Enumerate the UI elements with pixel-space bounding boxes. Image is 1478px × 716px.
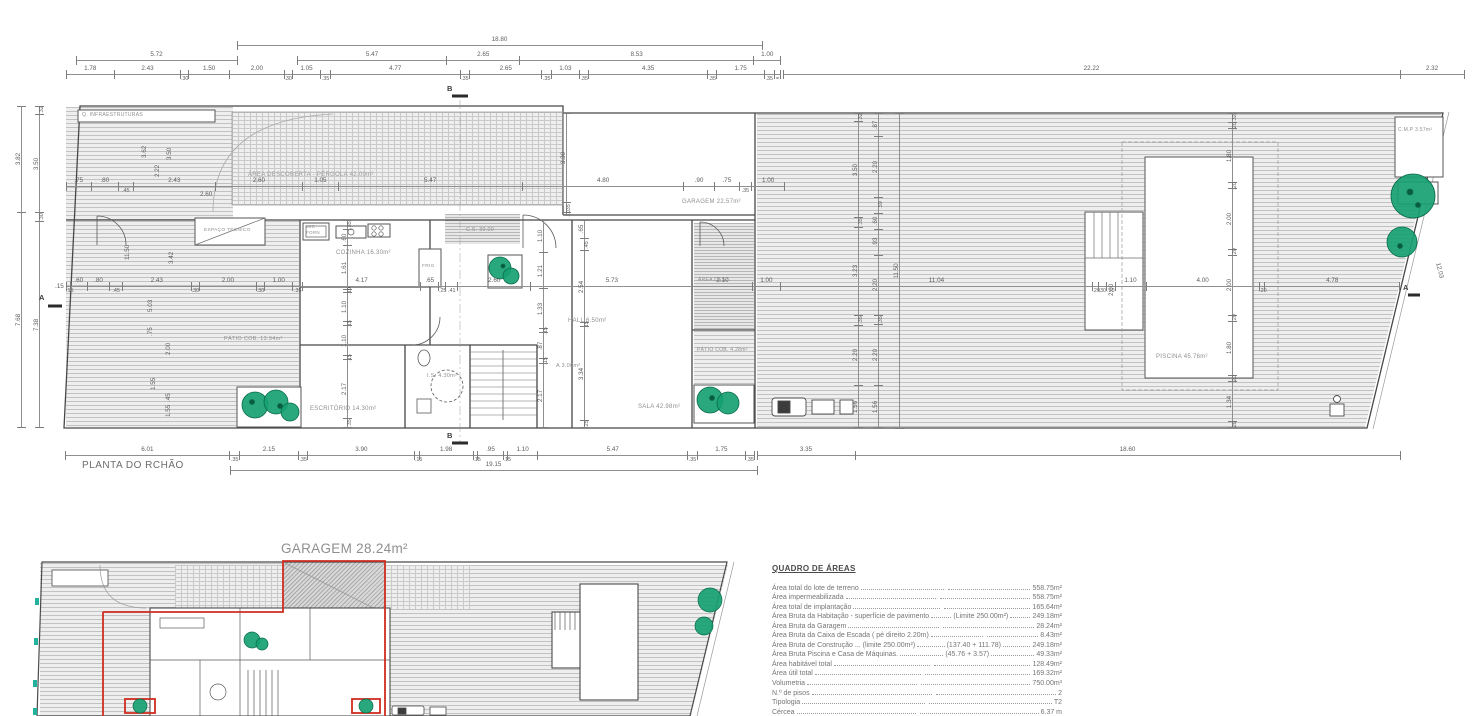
dim-chain-upper: .75.80.452.432.601.055.474.80.90.75.351.… — [66, 179, 785, 189]
dim-label: 3.50 — [166, 148, 173, 160]
section-marker-b-bottom: B — [447, 431, 452, 440]
dotted-leader — [815, 674, 921, 675]
label-mic: MIC — [306, 224, 315, 229]
table-row: Área Bruta da Caixa de Escada ( pé direi… — [772, 630, 1062, 640]
row-value: 165.64m² — [1032, 604, 1062, 611]
dotted-leader — [948, 589, 1031, 590]
dotted-leader — [987, 636, 1039, 637]
row-label: Área habitável total — [772, 661, 832, 668]
dim-chain-pool: .32.201.80.202.00.202.00.201.80.201.34.2… — [1225, 113, 1235, 428]
patio-left-hatch — [66, 221, 299, 427]
room-label-espaco: ESPAÇO TÉCNICO — [204, 228, 251, 233]
dim-chain-bottom: 6.01.352.15.353.90.151.98.15.95.151.105.… — [65, 448, 755, 458]
row-label: Área útil total — [772, 670, 813, 677]
row-value: 28.24m² — [1036, 623, 1062, 630]
dotted-leader — [1003, 646, 1030, 647]
room-label-patio1: PÁTIO COB. 13.94m² — [224, 336, 283, 342]
dim-chain-mid: .15.60.80.452.43.302.00.301.00.354.17.65… — [66, 279, 1400, 289]
room-label-hall: HALL 6.50m² — [568, 318, 606, 324]
terrace-hatch — [66, 107, 233, 220]
row-label: Volumetria — [772, 680, 805, 687]
dim-label: .45 — [165, 393, 172, 402]
dim-chain-hall: 1.101.211.33.15.87.152.17 — [536, 220, 546, 428]
room-label-cmp: C.M.P 3.57m² — [1398, 127, 1432, 133]
dotted-leader — [834, 665, 930, 666]
patio-cob2-hatch — [694, 331, 754, 384]
dotted-leader — [861, 589, 944, 590]
dim-chain-garage: 3.30.35.10 — [559, 113, 569, 215]
row-label: Área Bruta da Garagem — [772, 623, 846, 630]
row-value: 249.18m² — [1032, 613, 1062, 620]
dim-chain-height-total: 11.50 — [892, 113, 902, 428]
dim-chain-bottom-d: 18.60 — [855, 448, 1400, 458]
row-label: Área total do lote de terreno — [772, 585, 859, 592]
dotted-leader — [848, 627, 939, 628]
section-marker-a-right: A — [1403, 283, 1408, 292]
row-label: Área Bruta da Caixa de Escada ( pé direi… — [772, 632, 929, 639]
table-row: Área Bruta da Garagem 28.24m² — [772, 620, 1062, 630]
room-label-cozinha: COZINHA 16.30m² — [336, 250, 391, 256]
table-row: Tipologia T2 — [772, 697, 1062, 707]
room-label-escritorio: ESCRITÓRIO 14.30m² — [310, 406, 376, 412]
row-annotation: (137.40 + 111.78) — [947, 642, 1001, 649]
dim-chain-top-b: 5.472.658.531.00 — [297, 53, 781, 63]
dotted-leader — [807, 684, 917, 685]
section-marker-b-top: B — [447, 84, 452, 93]
dim-label: 3.42 — [168, 252, 175, 264]
dim-label: 11.50 — [124, 245, 131, 260]
dim-chain-left-outer: 3.827.68 — [14, 106, 24, 428]
dim-label: 1.55 — [165, 405, 172, 417]
row-value: T2 — [1054, 699, 1062, 706]
row-value: 750.00m³ — [1032, 680, 1062, 687]
dotted-leader — [936, 694, 1056, 695]
areas-table: QUADRO DE ÁREAS Área total do lote de te… — [772, 558, 1062, 716]
row-annotation: (45.76 + 3.57) — [945, 651, 989, 658]
dotted-leader — [931, 617, 951, 618]
row-value: 49.33m² — [1036, 651, 1062, 658]
dim-label: .15 — [55, 283, 64, 290]
dim-chain-site-a: 22.22 — [783, 67, 1400, 77]
row-value: 249.18m² — [1032, 642, 1062, 649]
dotted-leader — [1010, 617, 1030, 618]
areas-table-title: QUADRO DE ÁREAS — [772, 564, 856, 573]
dim-chain-top-total: 18.80 — [237, 38, 762, 48]
table-row: Área Bruta de Construção ... (limite 250… — [772, 639, 1062, 649]
room-label-piscina: PISCINA 45.76m² — [1156, 354, 1208, 360]
dim-label: 2.00 — [165, 343, 172, 355]
dim-label: 2.22 — [154, 165, 161, 177]
section-marker-a-left: A — [39, 293, 44, 302]
row-annotation: (Limite 250.00m²) — [953, 613, 1008, 620]
plan-title: PLANTA DO RCHÃO — [82, 460, 184, 471]
garage-plan-title: GARAGEM 28.24m² — [281, 541, 408, 556]
dotted-leader — [920, 713, 1039, 714]
dotted-leader — [917, 646, 944, 647]
dotted-leader — [853, 608, 940, 609]
dotted-leader — [991, 655, 1034, 656]
row-label: Área total de implantação — [772, 604, 851, 611]
dotted-leader — [846, 598, 936, 599]
pergola-hatch — [232, 112, 563, 205]
dim-label: 5.03 — [147, 300, 154, 312]
dim-chain-bottom-c: 3.35 — [757, 448, 855, 458]
dotted-leader — [812, 694, 932, 695]
table-row: Área Bruta Piscina e Casa de Máquinas. (… — [772, 649, 1062, 659]
dotted-leader — [929, 703, 1052, 704]
row-value: 169.32m² — [1032, 670, 1062, 677]
dotted-leader — [944, 608, 1031, 609]
dim-label: .75 — [147, 327, 154, 336]
dotted-leader — [900, 655, 943, 656]
dotted-leader — [797, 713, 916, 714]
table-row: N.º de pisos 2 — [772, 687, 1062, 697]
dotted-leader — [934, 665, 1030, 666]
dim-chain-left-inner: .323.50.307.38 — [32, 106, 42, 428]
room-label-areadesc: ÁREA DESC. — [698, 277, 731, 283]
table-row: Área total do lote de terreno 558.75m² — [772, 582, 1062, 592]
table-row: Área impermeabilizada 558.75m² — [772, 592, 1062, 602]
row-label: Área Bruta da Habitação - superfície de … — [772, 613, 929, 620]
dim-chain-deck-b: .872.20.59.60.932.20.352.201.56 — [871, 113, 881, 428]
dim-chain-top-detail: 1.782.43.301.502.00.301.05.354.77.352.65… — [66, 67, 781, 77]
p2-garage-hatch — [283, 562, 385, 614]
dotted-leader — [940, 598, 1030, 599]
row-label: Tipologia — [772, 699, 800, 706]
label-forn: FORN — [306, 230, 320, 235]
table-row: Área total de implantação 165.64m² — [772, 601, 1062, 611]
row-value: 2 — [1058, 690, 1062, 697]
dim-chain-bottom-total: 19.15 — [230, 463, 757, 473]
dotted-leader — [931, 636, 983, 637]
room-label-arrumos: A 3.00m² — [556, 363, 580, 369]
room-label-sala: SALA 42.98m² — [638, 404, 680, 410]
row-value: 6.37 m — [1041, 709, 1062, 716]
row-label: N.º de pisos — [772, 690, 810, 697]
p2-hedge-marks — [33, 598, 39, 715]
dim-label: 2.60 — [200, 191, 212, 198]
dotted-leader — [921, 684, 1031, 685]
tree-icon — [359, 699, 373, 713]
dim-chain-deck-a: .323.50.353.23.352.201.56 — [851, 113, 861, 428]
label-cs: C.S. 30.00 — [466, 227, 494, 233]
label-frig: FRIG — [422, 264, 435, 269]
table-row: Área Bruta da Habitação - superfície de … — [772, 611, 1062, 621]
row-value: 8.43m² — [1040, 632, 1062, 639]
dim-label: 2.00 — [1108, 284, 1115, 296]
room-label-pergola: ÁREA DESCOBERTA - PÉRGOLA 42.00m² — [248, 172, 374, 178]
room-label-infra: Q. INFRAESTRUTURAS — [82, 112, 143, 118]
room-label-is: I.S. 4.30m² — [427, 373, 457, 379]
room-label-garagem: GARAGEM 22.57m² — [682, 199, 741, 205]
table-row: Volumetria 750.00m³ — [772, 677, 1062, 687]
table-row: Área habitável total 128.49m² — [772, 658, 1062, 668]
row-label: Área Bruta Piscina e Casa de Máquinas. — [772, 651, 898, 658]
dim-label: 1.55 — [150, 378, 157, 390]
drawing-canvas: 18.80 5.72 5.472.658.531.00 1.782.43.301… — [0, 0, 1478, 716]
row-value: 558.75m² — [1032, 594, 1062, 601]
row-label: Cércea — [772, 709, 795, 716]
table-row: Cércea 6.37 m — [772, 706, 1062, 716]
areas-table-rows: Área total do lote de terreno 558.75m² Á… — [772, 582, 1062, 716]
dim-chain-site-b: 2.32 — [1400, 67, 1464, 77]
row-label: Área impermeabilizada — [772, 594, 844, 601]
dotted-leader — [943, 627, 1034, 628]
table-row: Área útil total 169.32m² — [772, 668, 1062, 678]
dim-label: 3.62 — [141, 146, 148, 158]
room-label-patio2: PÁTIO COB. 4.28m² — [697, 347, 748, 353]
row-value: 558.75m² — [1032, 585, 1062, 592]
dotted-leader — [802, 703, 925, 704]
row-label: Área Bruta de Construção ... (limite 250… — [772, 642, 915, 649]
dotted-leader — [925, 674, 1031, 675]
row-value: 128.49m² — [1032, 661, 1062, 668]
dim-chain-stair: .65.452.54.153.34.25 — [577, 220, 587, 428]
dim-chain-top-a: 5.72 — [76, 53, 237, 63]
